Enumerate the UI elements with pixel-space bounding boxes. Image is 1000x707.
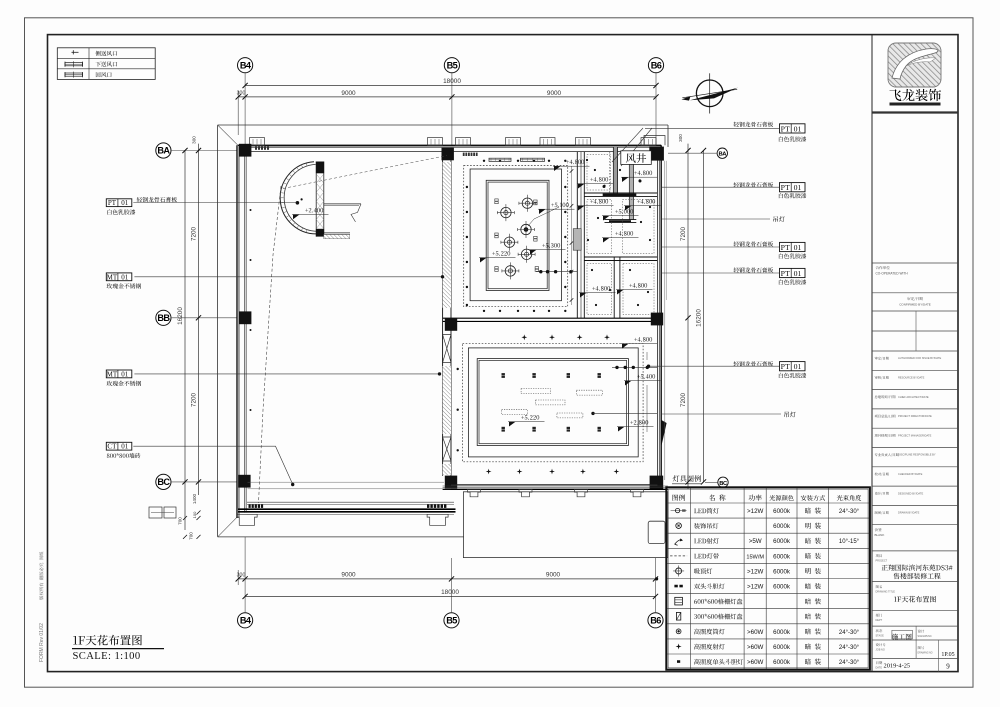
svg-text:PROJECT DIRECTOR/DATE: PROJECT DIRECTOR/DATE bbox=[898, 414, 932, 418]
svg-text:DESIGNED BY/DATE: DESIGNED BY/DATE bbox=[898, 491, 923, 495]
svg-text:6000k: 6000k bbox=[773, 659, 791, 666]
svg-text:24°-30°: 24°-30° bbox=[839, 630, 860, 636]
svg-text:18000: 18000 bbox=[443, 78, 461, 85]
svg-text:DRAWING TITLE: DRAWING TITLE bbox=[876, 591, 896, 594]
svg-text:DATE: DATE bbox=[876, 667, 883, 670]
svg-text:PROJECT: PROJECT bbox=[876, 560, 888, 563]
svg-text:STAGE: STAGE bbox=[876, 635, 885, 638]
svg-text:01: 01 bbox=[121, 370, 129, 378]
svg-text:PROJECT MANAGER/DATE: PROJECT MANAGER/DATE bbox=[898, 433, 932, 437]
svg-text:6000k: 6000k bbox=[773, 508, 791, 515]
svg-text:6000k: 6000k bbox=[773, 568, 791, 575]
svg-text:>12W: >12W bbox=[747, 508, 763, 515]
svg-text:DRAWING NO: DRAWING NO bbox=[918, 652, 933, 655]
svg-text:RESOURCE BY/DATE: RESOURCE BY/DATE bbox=[898, 376, 925, 380]
svg-text:9: 9 bbox=[946, 663, 950, 671]
svg-text:01: 01 bbox=[794, 183, 802, 192]
svg-text:JOB NO: JOB NO bbox=[876, 649, 885, 652]
svg-text:PT: PT bbox=[781, 362, 790, 371]
svg-text:2019-4-25: 2019-4-25 bbox=[884, 663, 911, 670]
svg-text:CHIEF ARCHITECT/DATE: CHIEF ARCHITECT/DATE bbox=[898, 395, 929, 399]
svg-text:MT: MT bbox=[107, 273, 118, 281]
svg-text:6000k: 6000k bbox=[773, 644, 791, 651]
svg-text:BA: BA bbox=[719, 152, 728, 158]
svg-text:300: 300 bbox=[678, 134, 683, 142]
svg-text:9000: 9000 bbox=[341, 90, 356, 97]
svg-text:700: 700 bbox=[178, 517, 183, 525]
svg-text:SIGNAPUNC: SIGNAPUNC bbox=[918, 635, 932, 638]
svg-text:7200: 7200 bbox=[680, 226, 687, 241]
svg-text:CO-OPERATED WITH: CO-OPERATED WITH bbox=[876, 272, 909, 276]
svg-text:18000: 18000 bbox=[441, 589, 459, 596]
svg-text:B6: B6 bbox=[651, 60, 662, 70]
svg-text:6000k: 6000k bbox=[773, 629, 791, 636]
svg-text:B6: B6 bbox=[650, 616, 661, 626]
svg-text:CHECKED BY/DATE: CHECKED BY/DATE bbox=[898, 472, 923, 476]
svg-text:300: 300 bbox=[237, 91, 246, 97]
svg-text:AUTHORIZED FOR ISSUE BY/DATE: AUTHORIZED FOR ISSUE BY/DATE bbox=[898, 356, 941, 360]
svg-text:PT: PT bbox=[781, 124, 790, 133]
svg-text:B4: B4 bbox=[240, 60, 252, 70]
svg-text:10°-15°: 10°-15° bbox=[839, 539, 860, 545]
svg-text:6000k: 6000k bbox=[773, 553, 791, 560]
svg-text:BLANK: BLANK bbox=[875, 533, 885, 537]
svg-text:7200: 7200 bbox=[191, 392, 198, 407]
svg-text:MT: MT bbox=[107, 370, 118, 378]
svg-text:9000: 9000 bbox=[341, 572, 356, 579]
svg-text:7200: 7200 bbox=[191, 226, 198, 241]
svg-text:6000k: 6000k bbox=[773, 523, 791, 530]
svg-text:24°-30°: 24°-30° bbox=[839, 509, 860, 515]
svg-text:>12W: >12W bbox=[747, 568, 763, 575]
svg-text:700: 700 bbox=[188, 532, 193, 540]
svg-text:>60W: >60W bbox=[747, 629, 763, 636]
svg-text:CT: CT bbox=[107, 443, 117, 451]
svg-text:PT: PT bbox=[781, 269, 790, 278]
svg-text:BC: BC bbox=[719, 481, 728, 487]
svg-text:BA: BA bbox=[157, 146, 170, 156]
svg-text:CONFIRMED BY/DATE: CONFIRMED BY/DATE bbox=[899, 303, 931, 307]
svg-text:24°-30°: 24°-30° bbox=[839, 645, 860, 651]
svg-text:01: 01 bbox=[121, 199, 129, 207]
svg-text:01: 01 bbox=[121, 273, 129, 281]
svg-text:7200: 7200 bbox=[680, 392, 687, 407]
svg-text:PT: PT bbox=[781, 243, 790, 252]
svg-text:6000k: 6000k bbox=[773, 538, 791, 545]
svg-text:16200: 16200 bbox=[696, 309, 703, 327]
svg-text:PT: PT bbox=[781, 183, 790, 192]
svg-text:>60W: >60W bbox=[747, 644, 763, 651]
svg-text:16200: 16200 bbox=[177, 307, 184, 325]
svg-text:DEPT: DEPT bbox=[876, 619, 883, 622]
svg-text:300: 300 bbox=[192, 136, 197, 144]
svg-text:01: 01 bbox=[794, 269, 802, 278]
svg-text:B5: B5 bbox=[446, 616, 457, 626]
svg-text:B4: B4 bbox=[240, 616, 252, 626]
svg-text:01: 01 bbox=[794, 362, 802, 371]
svg-text:9000: 9000 bbox=[547, 90, 562, 97]
svg-text:PT: PT bbox=[108, 199, 117, 207]
svg-text:100: 100 bbox=[192, 511, 197, 518]
svg-text:6000k: 6000k bbox=[773, 583, 791, 590]
svg-text:1P.05: 1P.05 bbox=[941, 652, 954, 658]
svg-text:15W/M: 15W/M bbox=[746, 554, 764, 560]
svg-text:01: 01 bbox=[794, 124, 802, 133]
svg-text:B5: B5 bbox=[447, 60, 458, 70]
svg-text:9000: 9000 bbox=[546, 572, 561, 579]
svg-text:01: 01 bbox=[121, 443, 129, 451]
svg-text:>60W: >60W bbox=[747, 659, 763, 666]
svg-text:BB: BB bbox=[157, 313, 170, 323]
svg-text:DISCIPLINE RESPONSIBLE BY: DISCIPLINE RESPONSIBLE BY bbox=[898, 453, 936, 457]
svg-text:01: 01 bbox=[794, 243, 802, 252]
svg-text:FORM Rev 01/02: FORM Rev 01/02 bbox=[39, 623, 45, 662]
svg-text:SCALE: 1:100: SCALE: 1:100 bbox=[73, 651, 141, 662]
svg-text:300: 300 bbox=[237, 573, 246, 579]
svg-text:DRAWN BY/DATE: DRAWN BY/DATE bbox=[898, 511, 920, 515]
svg-text:>5W: >5W bbox=[749, 538, 762, 545]
svg-text:>12W: >12W bbox=[747, 583, 763, 590]
svg-text:BC: BC bbox=[157, 477, 170, 487]
svg-text:1400: 1400 bbox=[192, 493, 197, 504]
svg-text:24°-30°: 24°-30° bbox=[839, 660, 860, 666]
